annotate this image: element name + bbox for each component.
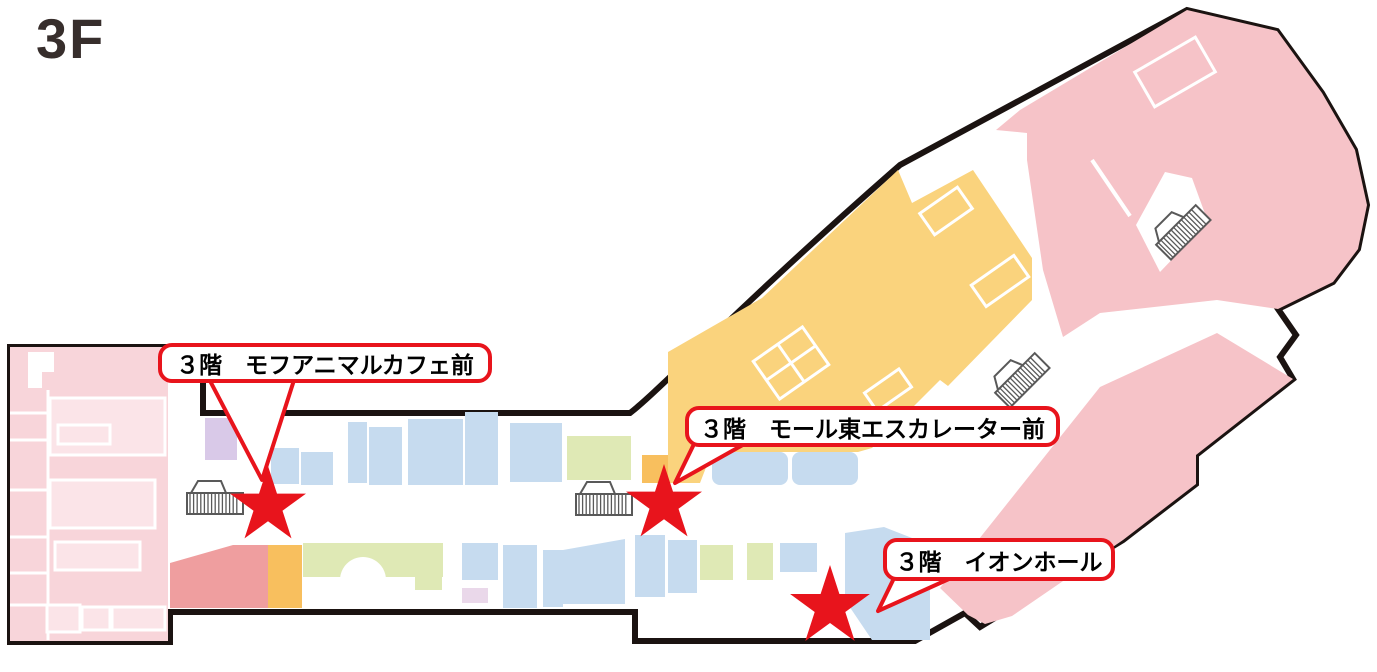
tenant-block [792, 452, 858, 485]
tenant-block [668, 540, 697, 593]
tenant-block [271, 448, 299, 484]
floor-map [0, 0, 1377, 672]
callout-mofu-animal-cafe-label: ３階 モフアニマルカフェ前 [176, 346, 474, 380]
tenant-block [563, 539, 625, 604]
callout-aeon-hall: ３階 イオンホール [883, 538, 1115, 581]
tenant-block [510, 423, 562, 482]
tenant-block [543, 550, 563, 607]
floor-title: 3F [36, 6, 105, 71]
tenant-block [462, 543, 498, 580]
tenant-block [700, 545, 733, 580]
tenant-block [301, 452, 333, 485]
wing-pink-northeast [996, 10, 1367, 337]
tenant-block [780, 543, 817, 572]
tenant-block [567, 436, 631, 480]
tenant-block [635, 535, 665, 597]
tenant-block [503, 545, 537, 608]
callout-mall-east-escalator-label: ３階 モール東エスカレーター前 [700, 410, 1045, 444]
callout-mall-east-escalator: ３階 モール東エスカレーター前 [685, 406, 1060, 447]
tenant-block [415, 575, 442, 590]
tenant-block [268, 545, 302, 608]
callout-mofu-animal-cafe: ３階 モフアニマルカフェ前 [158, 343, 492, 383]
tenant-block [462, 588, 488, 603]
tenant-block [747, 543, 773, 580]
callout-aeon-hall-label: ３階 イオンホール [896, 543, 1103, 577]
tenant-block [408, 419, 463, 485]
tenant-block [348, 422, 367, 483]
anchor-store-west [10, 347, 168, 641]
floor-map-page: 3F ３階 モフアニマルカフェ前 ３階 モール東エスカレーター前 ３階 イオンホ… [0, 0, 1377, 672]
wing-corridor-tenants [712, 452, 858, 485]
tenant-block [465, 412, 498, 485]
tenant-block [369, 427, 402, 485]
